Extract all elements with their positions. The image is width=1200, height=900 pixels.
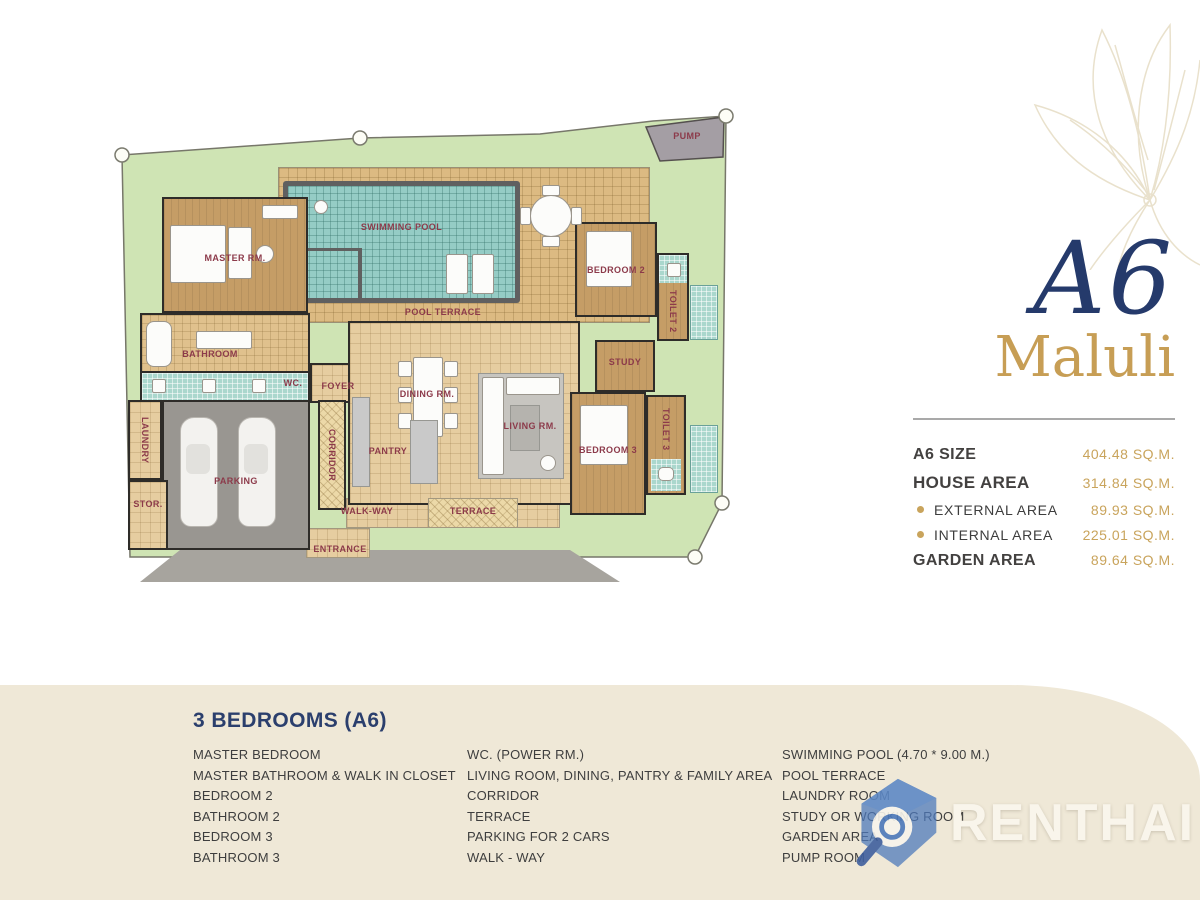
- swimming-pool: SWIMMING POOL: [283, 181, 520, 303]
- legend-item: LIVING ROOM, DINING, PANTRY & FAMILY ARE…: [467, 766, 772, 787]
- dining-chair: [444, 413, 458, 429]
- pool-terrace-label: POOL TERRACE: [368, 307, 518, 317]
- swimmer-figure: [314, 200, 328, 214]
- stat-row: INTERNAL AREA 225.01 SQ.M.: [913, 527, 1175, 543]
- stat-label: GARDEN AREA: [913, 552, 1036, 570]
- wc-fixture: [658, 467, 674, 481]
- side-chair: [540, 455, 556, 471]
- master-room-label: MASTER RM.: [162, 253, 308, 263]
- bathroom-label: BATHROOM: [140, 349, 280, 359]
- legend-column-2: WC. (POWER RM.) LIVING ROOM, DINING, PAN…: [467, 745, 772, 868]
- study-label: STUDY: [595, 357, 655, 367]
- bathtub: [146, 321, 172, 367]
- laundry-label-wrap: LAUNDRY: [128, 400, 162, 480]
- legend-item: PARKING FOR 2 CARS: [467, 827, 772, 848]
- parking-label: PARKING: [172, 476, 300, 486]
- stat-row: HOUSE AREA 314.84 SQ.M.: [913, 473, 1175, 493]
- legend-item: BATHROOM 2: [193, 807, 456, 828]
- bedroom-2-label: BEDROOM 2: [575, 265, 657, 275]
- dining-room-label: DINING RM.: [372, 389, 482, 399]
- legend-item: CORRIDOR: [467, 786, 772, 807]
- unit-name: Maluli: [909, 329, 1175, 388]
- stat-label: INTERNAL AREA: [917, 527, 1053, 543]
- corridor-label-wrap: CORRIDOR: [318, 400, 346, 510]
- legend-item: MASTER BATHROOM & WALK IN CLOSET: [193, 766, 456, 787]
- stat-label: EXTERNAL AREA: [917, 502, 1058, 518]
- walkway-label: WALK-WAY: [332, 506, 402, 516]
- pump-label: PUMP: [650, 131, 724, 141]
- toilet-3-label-wrap: TOILET 3: [646, 401, 686, 457]
- stat-value: 89.64 SQ.M.: [1091, 552, 1175, 568]
- dining-chair: [444, 361, 458, 377]
- divider: [913, 418, 1175, 420]
- bed-2: [586, 231, 632, 287]
- kid-pool-wall: [358, 250, 362, 298]
- living-room-label: LIVING RM.: [478, 421, 582, 431]
- legend-item: WALK - WAY: [467, 848, 772, 869]
- swimming-pool-label: SWIMMING POOL: [288, 222, 515, 232]
- outdoor-shower-2: [690, 285, 718, 340]
- bullet-icon: [917, 531, 924, 538]
- legend-item: BEDROOM 3: [193, 827, 456, 848]
- car: [238, 417, 276, 527]
- stat-value: 314.84 SQ.M.: [1083, 475, 1175, 491]
- stat-row: GARDEN AREA 89.64 SQ.M.: [913, 552, 1175, 570]
- wc-fixture: [252, 379, 266, 393]
- unit-code: A6: [909, 233, 1175, 325]
- entrance-label: ENTRANCE: [298, 544, 382, 554]
- pantry-label: PANTRY: [356, 446, 420, 456]
- stat-label: HOUSE AREA: [913, 473, 1030, 493]
- vanity: [196, 331, 252, 349]
- master-wardrobe: [262, 205, 298, 219]
- wc-fixture: [202, 379, 216, 393]
- legend-item: WC. (POWER RM.): [467, 745, 772, 766]
- watermark-text: RENTHAI: [950, 793, 1195, 853]
- corridor-label: CORRIDOR: [327, 429, 337, 481]
- floor-plan: PUMP POOL TERRACE SWIMMING POOL: [110, 105, 750, 610]
- legend-panel: 3 BEDROOMS (A6) MASTER BEDROOM MASTER BA…: [0, 685, 1200, 900]
- dining-chair: [398, 361, 412, 377]
- sofa-chaise: [506, 377, 560, 395]
- wc-fixture: [152, 379, 166, 393]
- kitchen-counter: [352, 397, 370, 487]
- outdoor-table: [520, 185, 580, 245]
- stat-row: EXTERNAL AREA 89.93 SQ.M.: [913, 502, 1175, 518]
- outdoor-shower-3: [690, 425, 718, 493]
- foyer-label: FOYER: [310, 381, 366, 391]
- stat-label: A6 SIZE: [913, 446, 976, 464]
- area-stats: A6 SIZE 404.48 SQ.M. HOUSE AREA 314.84 S…: [913, 446, 1175, 570]
- legend-heading: 3 BEDROOMS (A6): [193, 709, 387, 733]
- pool-lounger: [446, 254, 468, 294]
- driveway: [140, 550, 640, 582]
- legend-item: MASTER BEDROOM: [193, 745, 456, 766]
- toilet-2-label: TOILET 2: [668, 290, 678, 333]
- laundry-label: LAUNDRY: [140, 417, 150, 463]
- legend-item: BATHROOM 3: [193, 848, 456, 869]
- renthai-logo-icon: [848, 775, 944, 871]
- storage-label: STOR.: [122, 499, 174, 509]
- wc-label: WC.: [278, 378, 308, 388]
- bedroom-3-label: BEDROOM 3: [570, 445, 646, 455]
- stat-value: 404.48 SQ.M.: [1083, 446, 1175, 462]
- pool-lounger: [472, 254, 494, 294]
- pool-water: SWIMMING POOL: [288, 186, 515, 298]
- legend-column-1: MASTER BEDROOM MASTER BATHROOM & WALK IN…: [193, 745, 456, 868]
- stat-value: 89.93 SQ.M.: [1091, 502, 1175, 518]
- stat-value: 225.01 SQ.M.: [1083, 527, 1175, 543]
- bed-3: [580, 405, 628, 465]
- terrace-label: TERRACE: [430, 506, 516, 516]
- unit-info-panel: A6 Maluli A6 SIZE 404.48 SQ.M. HOUSE ARE…: [909, 233, 1175, 579]
- toilet-3-label: TOILET 3: [661, 408, 671, 451]
- storage: [128, 480, 168, 550]
- legend-item: BEDROOM 2: [193, 786, 456, 807]
- wc-fixture: [667, 263, 681, 277]
- legend-item: TERRACE: [467, 807, 772, 828]
- floorplan-flyer: PUMP POOL TERRACE SWIMMING POOL: [0, 0, 1200, 900]
- stat-row: A6 SIZE 404.48 SQ.M.: [913, 446, 1175, 464]
- renthai-watermark: RENTHAI: [848, 775, 1195, 871]
- legend-item: SWIMMING POOL (4.70 * 9.00 M.): [782, 745, 990, 766]
- bullet-icon: [917, 506, 924, 513]
- toilet-2-label-wrap: TOILET 2: [657, 283, 689, 339]
- car: [180, 417, 218, 527]
